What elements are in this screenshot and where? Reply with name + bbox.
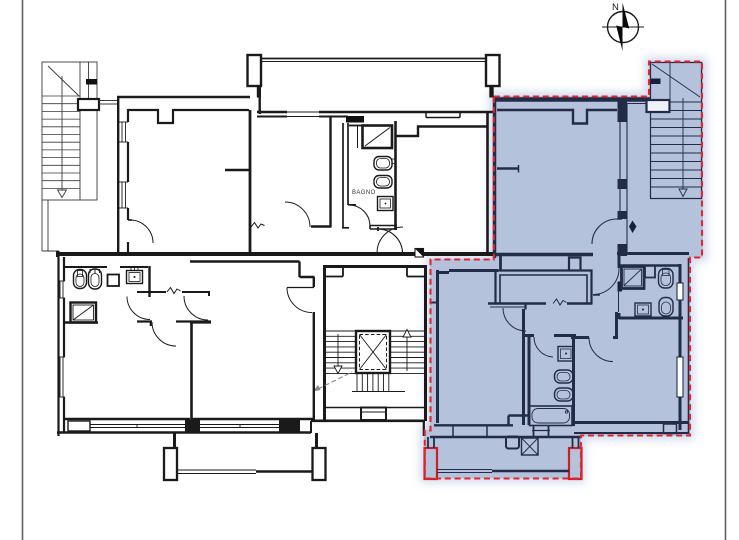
svg-text:N: N: [612, 2, 619, 13]
svg-text:BAGNO: BAGNO: [352, 190, 376, 196]
